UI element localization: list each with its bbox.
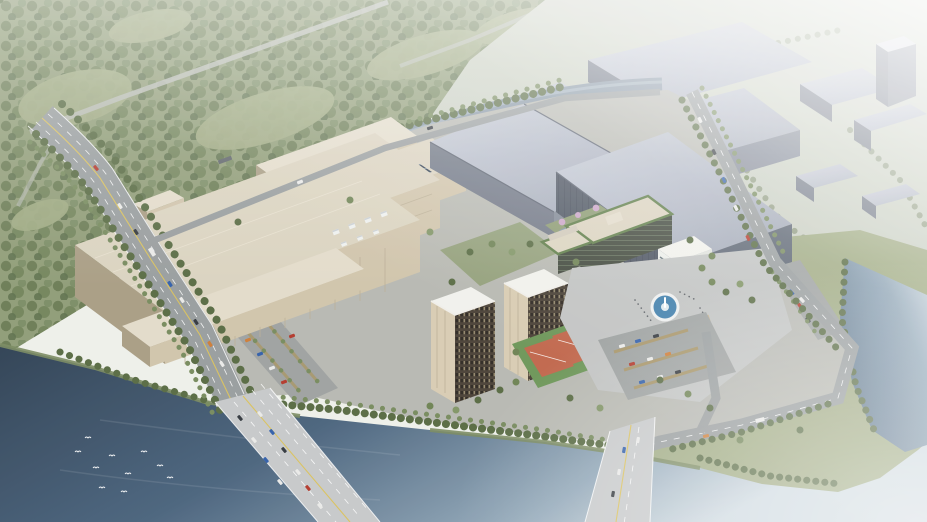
haze-overlay (0, 0, 927, 522)
rendering-canvas: ​ (0, 0, 927, 522)
aerial-rendering: ​ (0, 0, 927, 522)
